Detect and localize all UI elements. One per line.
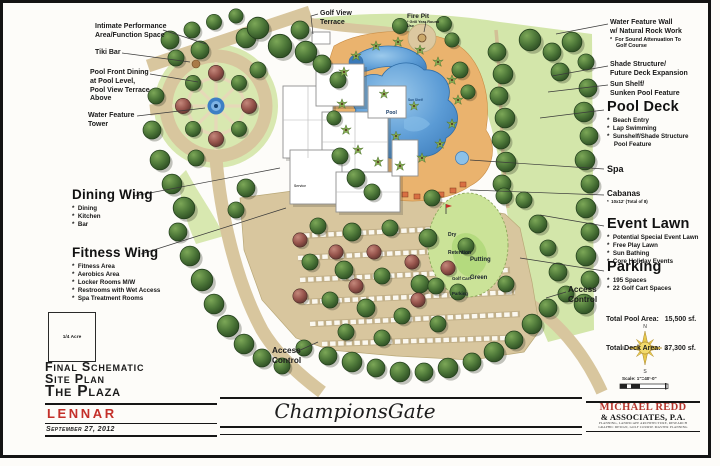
label-sun-shelf: Sun Shelf/ Sunken Pool Feature — [610, 81, 680, 99]
label-parking: Parking * 195 Spaces * 22 Golf Cart Spac… — [607, 260, 671, 293]
title-block-rule-2 — [45, 423, 217, 424]
label-area-totals: Total Pool Area: 15,500 sf. Total Deck A… — [606, 296, 696, 372]
lennar-logo: LENNAR — [47, 406, 117, 421]
plan-label-putting-green: Putting Green — [470, 245, 491, 293]
firm-services-2: GRAPHIC DESIGN, GOLF COURSE MASTER PLANN… — [588, 426, 698, 430]
label-fitness-wing: Fitness Wing * Fitness Area * Aerobics A… — [72, 246, 160, 303]
plan-label-dry-retention: Dry Retention — [448, 220, 471, 268]
label-water-feature-tower: Water Feature Tower — [88, 112, 134, 130]
label-pool-front-dining: Pool Front Dining at Pool Level, Pool Vi… — [90, 69, 150, 104]
plan-label-golf-cart-parking: Golf Cart Parking — [452, 266, 471, 306]
sheet-date: September 27, 2012 — [46, 426, 115, 433]
title-block-rule-1 — [45, 403, 217, 405]
site-plan-sheet: N E S W Scale: 1"=40'-0" Intimate Perfor… — [0, 0, 720, 466]
label-shade-structure: Shade Structure/ Future Deck Expansion — [610, 61, 688, 79]
label-intimate-performance: Intimate Performance Area/Function Space — [95, 23, 167, 41]
quarter-acre-scale-box: 1/4 Acre — [48, 312, 96, 362]
sheet-title-line3: The Plaza — [45, 383, 121, 401]
footer-rule-low — [220, 434, 582, 435]
label-golf-view-terrace: Golf View Terrace — [320, 10, 352, 28]
plan-label-service: Service — [294, 184, 306, 188]
label-access-control-right: Access Control — [568, 285, 597, 305]
label-access-control-bottom: Access Control — [272, 346, 301, 366]
plan-label-pool: Pool — [386, 110, 397, 116]
label-fire-pit: Fire Pit * Grill Year Round Use — [407, 13, 441, 29]
plan-label-sun-shelf: Sun Shelf — [408, 98, 423, 102]
label-dining-wing: Dining Wing * Dining * Kitchen * Bar — [72, 188, 153, 229]
label-tiki-bar: Tiki Bar — [95, 49, 121, 58]
label-water-feature-wall: Water Feature Wall w/ Natural Rock Work … — [610, 19, 682, 50]
project-name: ChampionsGate — [230, 399, 480, 423]
label-cabanas: Cabanas * 10x12' (Total of 8) — [607, 189, 648, 206]
quarter-acre-label: 1/4 Acre — [63, 335, 82, 340]
footer-rule-mid — [220, 426, 582, 428]
firm-rule-bottom — [586, 431, 700, 432]
title-block-rule-3 — [45, 435, 217, 437]
label-pool-deck: Pool Deck * Beach Entry * Lap Swimming *… — [607, 100, 689, 149]
label-spa: Spa — [607, 164, 624, 174]
firm-block: MICHAEL REDD & ASSOCIATES, P.A. PLANNING… — [588, 403, 698, 430]
